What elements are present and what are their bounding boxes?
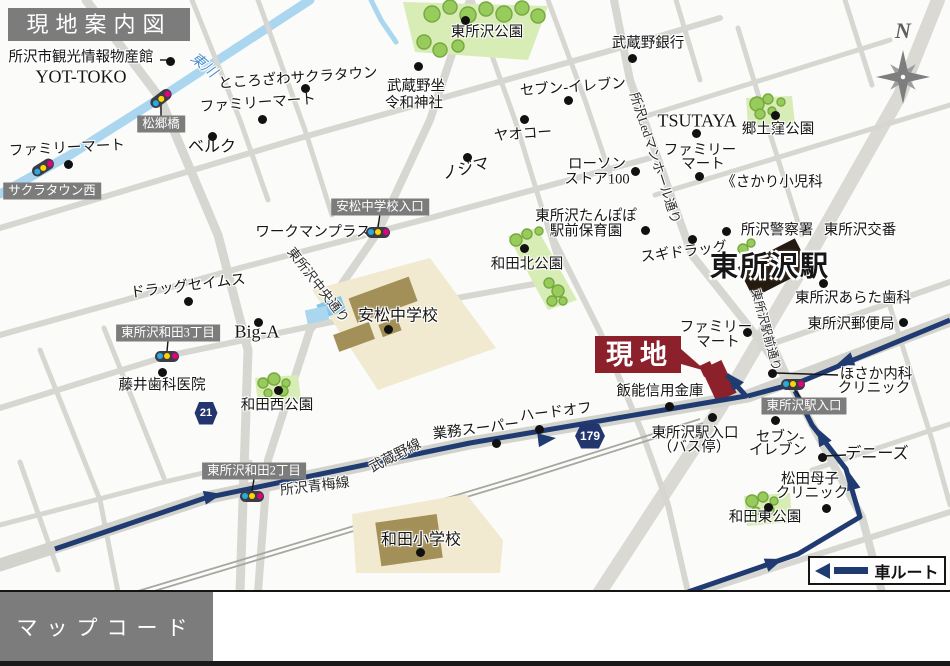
map-label: 和田東公園 (729, 510, 802, 525)
traffic-light-icon (781, 379, 805, 390)
poi-dot (688, 235, 697, 244)
map-label: ファミリー (680, 320, 753, 335)
map-label: 《さかり小児科 (721, 175, 823, 190)
map-label: （バス停） (658, 440, 731, 455)
poi-dot (208, 132, 217, 141)
map-label: 駅前保育園 (550, 224, 623, 239)
intersection-name-box: 東所沢和田2丁目 (202, 463, 306, 480)
poi-dot (274, 386, 283, 395)
map-label: 武蔵野坐 (387, 79, 445, 94)
footer-bottom-bar (0, 661, 950, 666)
poi-dot (819, 279, 828, 288)
poi-dot (692, 129, 701, 138)
poi-dot (631, 167, 640, 176)
poi-dot (463, 153, 472, 162)
poi-dot (743, 328, 752, 337)
poi-dot (166, 57, 175, 66)
map-label: 安松中学校 (358, 309, 438, 326)
traffic-light-icon (366, 227, 390, 238)
map-canvas: 所沢市観光情報物産館YOT-TOKOところざわサクラタウンファミリーマート東所沢… (0, 0, 950, 590)
intersection-name-box: 東所沢和田3丁目 (116, 325, 220, 342)
site-guide-map: 所沢市観光情報物産館YOT-TOKOところざわサクラタウンファミリーマート東所沢… (0, 0, 950, 666)
poi-dot (641, 226, 650, 235)
map-label: TSUTAYA (658, 112, 737, 131)
car-route-legend: 車ルート (808, 556, 946, 585)
poi-dot (695, 172, 704, 181)
site-label-box: 現地 (595, 336, 681, 373)
map-label: ベルク (188, 140, 236, 157)
map-label: 飯能信用金庫 (617, 384, 704, 399)
map-label: 東所沢あらた歯科 (795, 291, 911, 306)
poi-dot (899, 318, 908, 327)
poi-dot (384, 325, 393, 334)
poi-dot (564, 96, 573, 105)
map-label: マート (696, 335, 740, 350)
map-label: 東所沢交番 (824, 223, 897, 238)
car-route (55, 320, 950, 590)
page-title: 現地案内図 (8, 8, 190, 41)
poi-dot (771, 111, 780, 120)
map-label: 東所沢郵便局 (808, 317, 895, 332)
map-label: 東所沢公園 (451, 25, 524, 40)
poi-dot (158, 368, 167, 377)
compass-north-label: N (895, 18, 911, 44)
poi-dot (535, 425, 544, 434)
map-label: 和田西公園 (241, 398, 314, 413)
map-label: 所沢警察署 (741, 223, 814, 238)
poi-dot (628, 54, 637, 63)
poi-dot (768, 369, 777, 378)
map-label: イレブン (749, 443, 807, 458)
map-label: 武蔵野銀行 (612, 36, 685, 51)
map-label: ワークマンプラス (255, 225, 370, 240)
map-label: クリニック (776, 486, 849, 501)
mapcode-section-label: マップコード (0, 592, 213, 661)
traffic-light-icon (240, 491, 264, 502)
left-arrow-icon (815, 563, 830, 579)
map-label: マート (681, 157, 725, 172)
map-label: 東所沢たんぽぽ (535, 209, 637, 224)
intersection-name-box: 安松中学校入口 (331, 199, 429, 216)
map-label: デニーズ (845, 447, 908, 464)
station-label: 東所沢駅 (710, 252, 830, 281)
intersection-name-box: 東所沢駅入口 (761, 398, 846, 415)
poi-dot (301, 84, 310, 93)
poi-dot (665, 402, 674, 411)
intersection-name-box: 松郷橋 (137, 116, 185, 133)
poi-dot (461, 16, 470, 25)
map-label: 和田北公園 (491, 257, 564, 272)
traffic-light-icon (155, 351, 179, 362)
map-label: クリニック (838, 381, 911, 396)
map-label: 所沢市観光情報物産館 (9, 50, 154, 65)
poi-dot (771, 416, 780, 425)
poi-dot (414, 62, 423, 71)
poi-dot (818, 453, 827, 462)
poi-dot (520, 115, 529, 124)
map-label: YOT-TOKO (35, 68, 126, 87)
poi-dot (416, 548, 425, 557)
car-route-label: 車ルート (874, 559, 938, 583)
poi-dot (520, 244, 529, 253)
poi-dot (64, 160, 73, 169)
poi-dot (764, 503, 773, 512)
map-label: ストア100 (564, 172, 629, 187)
intersection-name-box: サクラタウン西 (3, 183, 101, 200)
poi-dot (258, 115, 267, 124)
poi-dot (184, 297, 193, 306)
poi-dot (708, 413, 717, 422)
map-label: ローソン (568, 157, 626, 172)
poi-dot (492, 439, 501, 448)
map-label: 和田小学校 (381, 533, 461, 550)
map-label: 令和神社 (385, 96, 443, 111)
site-pointer (681, 349, 706, 371)
poi-dot (822, 504, 831, 513)
poi-dot (254, 318, 263, 327)
map-label: 藤井歯科医院 (119, 378, 206, 393)
map-label: 郷土窪公園 (742, 122, 815, 137)
poi-dot (722, 227, 731, 236)
left-arrow-shaft (834, 567, 868, 574)
